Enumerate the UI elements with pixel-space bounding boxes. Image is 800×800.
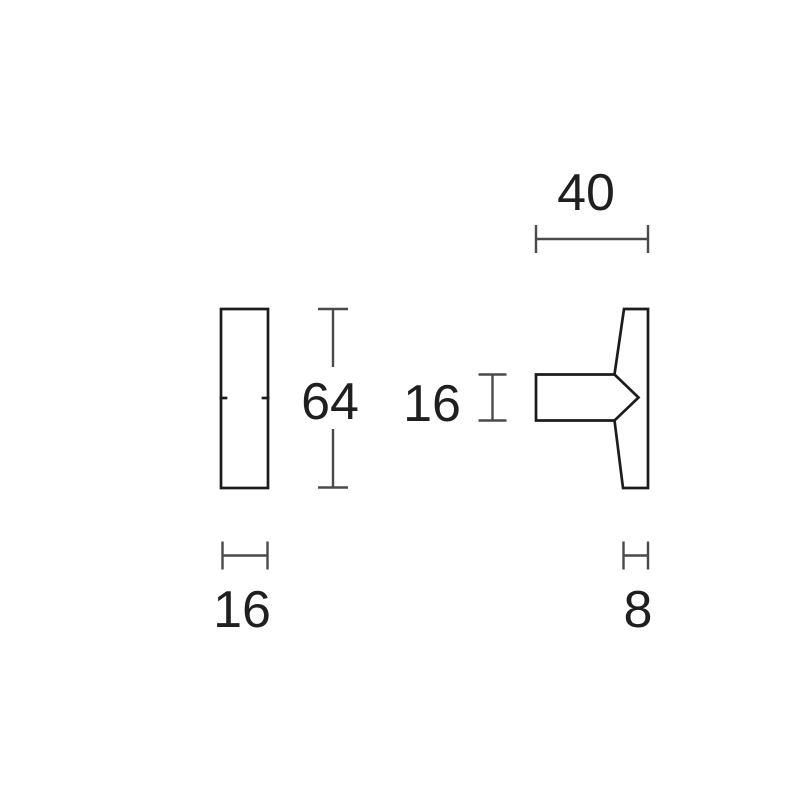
technical-drawing-canvas: 40 64 16 16 8 bbox=[0, 0, 800, 800]
dim-label-front-height: 64 bbox=[301, 373, 359, 431]
dimension-stem-thickness bbox=[479, 375, 507, 421]
dimension-side-overall-width bbox=[536, 225, 648, 253]
front-view-outline bbox=[221, 309, 268, 488]
dimension-base-thickness bbox=[624, 542, 649, 570]
stem-tip-chevron bbox=[615, 375, 639, 421]
side-view bbox=[536, 309, 648, 488]
dimension-labels: 40 64 16 16 8 bbox=[213, 164, 652, 639]
front-view bbox=[221, 309, 268, 488]
side-view-silhouette bbox=[536, 309, 648, 488]
dim-label-side-overall-width: 40 bbox=[557, 164, 615, 222]
dim-label-stem-thickness: 16 bbox=[403, 375, 461, 433]
dimension-front-width bbox=[223, 542, 268, 570]
dim-label-base-thickness: 8 bbox=[624, 581, 653, 639]
dim-label-front-width: 16 bbox=[213, 581, 271, 639]
knob-dimension-drawing: 40 64 16 16 8 bbox=[0, 0, 800, 800]
